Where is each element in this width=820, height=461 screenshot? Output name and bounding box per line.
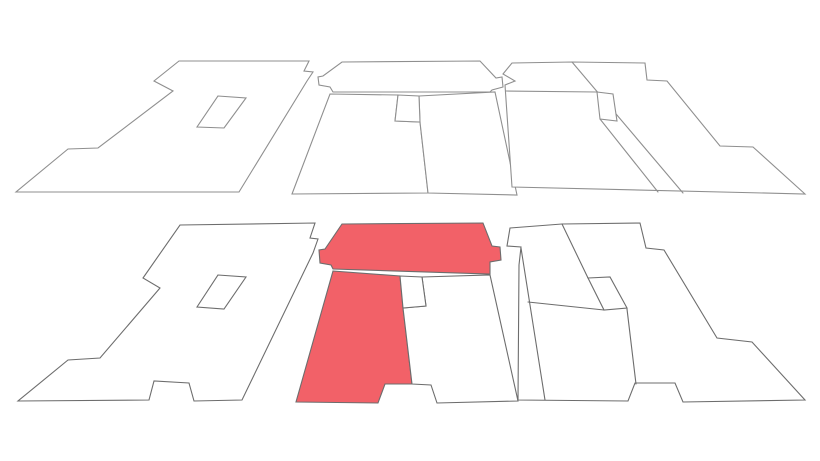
top-right-plate-outline — [503, 62, 805, 194]
floorplan-svg — [0, 0, 820, 461]
top-middle-small-room — [395, 95, 420, 122]
floorplan-diagram — [0, 0, 820, 461]
bottom-left-plate-outline — [18, 223, 318, 401]
top-middle-room-right — [419, 92, 517, 195]
bottom-middle-band-highlight — [319, 223, 501, 274]
top-left-plate-outline — [16, 61, 313, 192]
top-middle-band — [318, 61, 503, 92]
bottom-middle-small-room — [400, 276, 426, 308]
bottom-right-plate-outline — [507, 223, 805, 402]
bottom-middle-room-left-highlight — [296, 271, 412, 403]
